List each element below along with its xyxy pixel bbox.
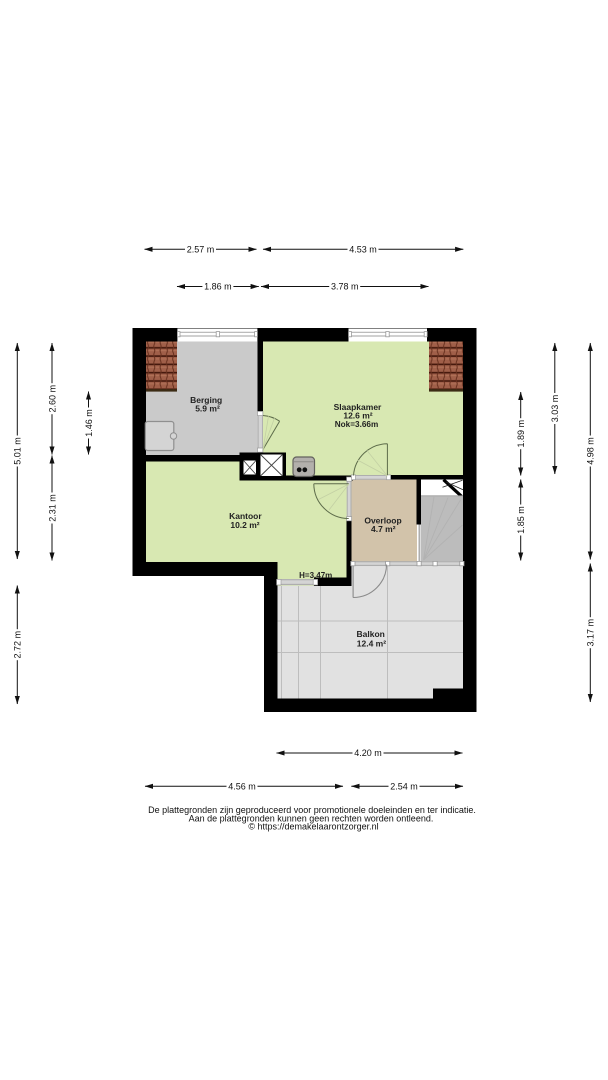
- svg-text:12.6 m²: 12.6 m²: [343, 411, 372, 421]
- svg-text:Nok=3.66m: Nok=3.66m: [335, 420, 378, 429]
- svg-text:4.7 m²: 4.7 m²: [371, 524, 396, 534]
- svg-text:3.17 m: 3.17 m: [586, 619, 596, 647]
- svg-text:1.85 m: 1.85 m: [516, 506, 526, 534]
- svg-text:3.03 m: 3.03 m: [550, 395, 560, 423]
- svg-text:2.60 m: 2.60 m: [47, 385, 57, 413]
- svg-text:12.4 m²: 12.4 m²: [357, 639, 386, 649]
- svg-text:2.72 m: 2.72 m: [13, 631, 23, 659]
- svg-text:4.53 m: 4.53 m: [349, 244, 377, 254]
- svg-text:4.98 m: 4.98 m: [586, 437, 596, 465]
- svg-text:1.89 m: 1.89 m: [516, 420, 526, 448]
- svg-text:Balkon: Balkon: [357, 629, 385, 639]
- svg-text:1.86 m: 1.86 m: [204, 282, 232, 292]
- svg-text:1.46 m: 1.46 m: [84, 409, 94, 437]
- svg-text:2.54 m: 2.54 m: [390, 782, 418, 792]
- svg-text:2.31 m: 2.31 m: [47, 494, 57, 522]
- svg-text:H=3.47m: H=3.47m: [299, 571, 332, 580]
- svg-text:© https://demakelaarontzorger.: © https://demakelaarontzorger.nl: [248, 822, 378, 832]
- svg-text:2.57 m: 2.57 m: [187, 244, 215, 254]
- svg-text:5.9 m²: 5.9 m²: [195, 404, 220, 414]
- svg-text:5.01 m: 5.01 m: [13, 437, 23, 465]
- svg-text:3.78 m: 3.78 m: [331, 282, 359, 292]
- svg-text:4.20 m: 4.20 m: [354, 748, 382, 758]
- svg-text:4.56 m: 4.56 m: [228, 782, 256, 792]
- svg-text:10.2 m²: 10.2 m²: [230, 520, 259, 530]
